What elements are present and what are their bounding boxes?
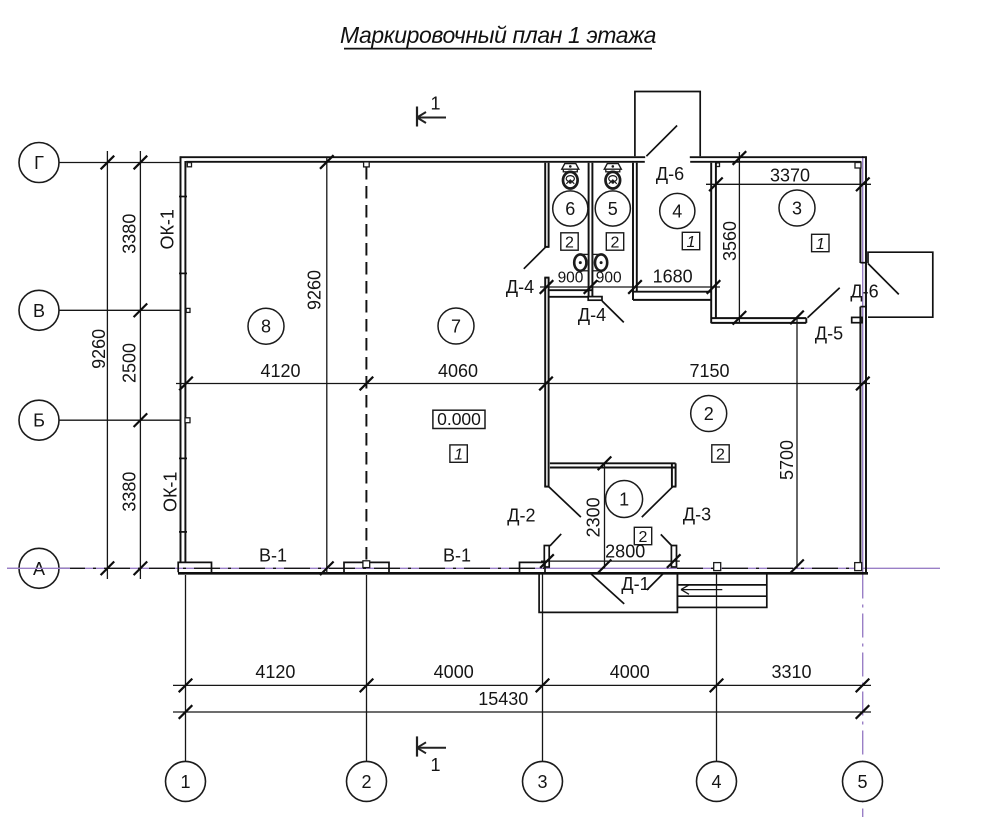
svg-text:3380: 3380 — [119, 214, 139, 254]
svg-text:3: 3 — [792, 199, 802, 219]
svg-text:1: 1 — [454, 447, 463, 464]
svg-text:Д-4: Д-4 — [506, 277, 534, 297]
svg-text:0.000: 0.000 — [437, 409, 481, 429]
svg-text:Б: Б — [33, 411, 45, 431]
svg-text:4: 4 — [711, 772, 721, 792]
svg-text:Д-3: Д-3 — [683, 505, 711, 525]
svg-text:1: 1 — [816, 236, 825, 253]
svg-text:2: 2 — [611, 235, 620, 252]
svg-text:2500: 2500 — [119, 343, 139, 383]
svg-text:В-1: В-1 — [443, 545, 471, 565]
svg-text:Маркировочный план 1 этажа: Маркировочный план 1 этажа — [340, 22, 656, 48]
svg-text:3370: 3370 — [770, 165, 810, 185]
svg-text:2: 2 — [361, 772, 371, 792]
svg-text:4000: 4000 — [434, 662, 474, 682]
svg-text:2: 2 — [716, 447, 725, 464]
svg-text:Д-2: Д-2 — [507, 505, 535, 525]
svg-text:3380: 3380 — [119, 472, 139, 512]
svg-text:2300: 2300 — [584, 497, 604, 537]
svg-text:Г: Г — [34, 153, 44, 173]
svg-text:1: 1 — [687, 234, 696, 251]
svg-text:9260: 9260 — [304, 270, 324, 310]
svg-text:В: В — [33, 301, 45, 321]
svg-text:2800: 2800 — [605, 541, 645, 561]
svg-text:7150: 7150 — [689, 361, 729, 381]
svg-text:1: 1 — [180, 772, 190, 792]
svg-text:4: 4 — [672, 202, 682, 222]
svg-text:1: 1 — [619, 490, 629, 510]
svg-text:3310: 3310 — [771, 662, 811, 682]
svg-text:5: 5 — [857, 772, 867, 792]
svg-text:4120: 4120 — [260, 361, 300, 381]
svg-text:4000: 4000 — [610, 662, 650, 682]
svg-text:ОК-1: ОК-1 — [158, 209, 178, 250]
svg-text:9260: 9260 — [89, 329, 109, 369]
svg-text:1680: 1680 — [653, 267, 693, 287]
svg-text:6: 6 — [565, 199, 575, 219]
svg-text:3560: 3560 — [720, 221, 740, 261]
svg-text:В-1: В-1 — [259, 545, 287, 565]
svg-text:2: 2 — [704, 404, 714, 424]
svg-text:1: 1 — [430, 755, 440, 775]
svg-text:ОК-1: ОК-1 — [160, 472, 180, 513]
svg-text:4120: 4120 — [255, 662, 295, 682]
svg-text:Д-6: Д-6 — [656, 164, 684, 184]
svg-text:900: 900 — [596, 270, 622, 287]
svg-text:3: 3 — [537, 772, 547, 792]
svg-text:Д-6: Д-6 — [850, 282, 878, 302]
svg-text:1: 1 — [430, 94, 440, 114]
svg-text:900: 900 — [558, 270, 584, 287]
svg-text:Д-4: Д-4 — [578, 305, 606, 325]
svg-text:15430: 15430 — [478, 689, 528, 709]
svg-text:7: 7 — [451, 317, 461, 337]
svg-text:Д-5: Д-5 — [815, 324, 843, 344]
svg-text:2: 2 — [565, 235, 574, 252]
svg-text:5700: 5700 — [777, 440, 797, 480]
svg-text:8: 8 — [261, 317, 271, 337]
svg-text:4060: 4060 — [438, 361, 478, 381]
svg-text:5: 5 — [608, 199, 618, 219]
svg-text:Д-1: Д-1 — [621, 574, 649, 594]
